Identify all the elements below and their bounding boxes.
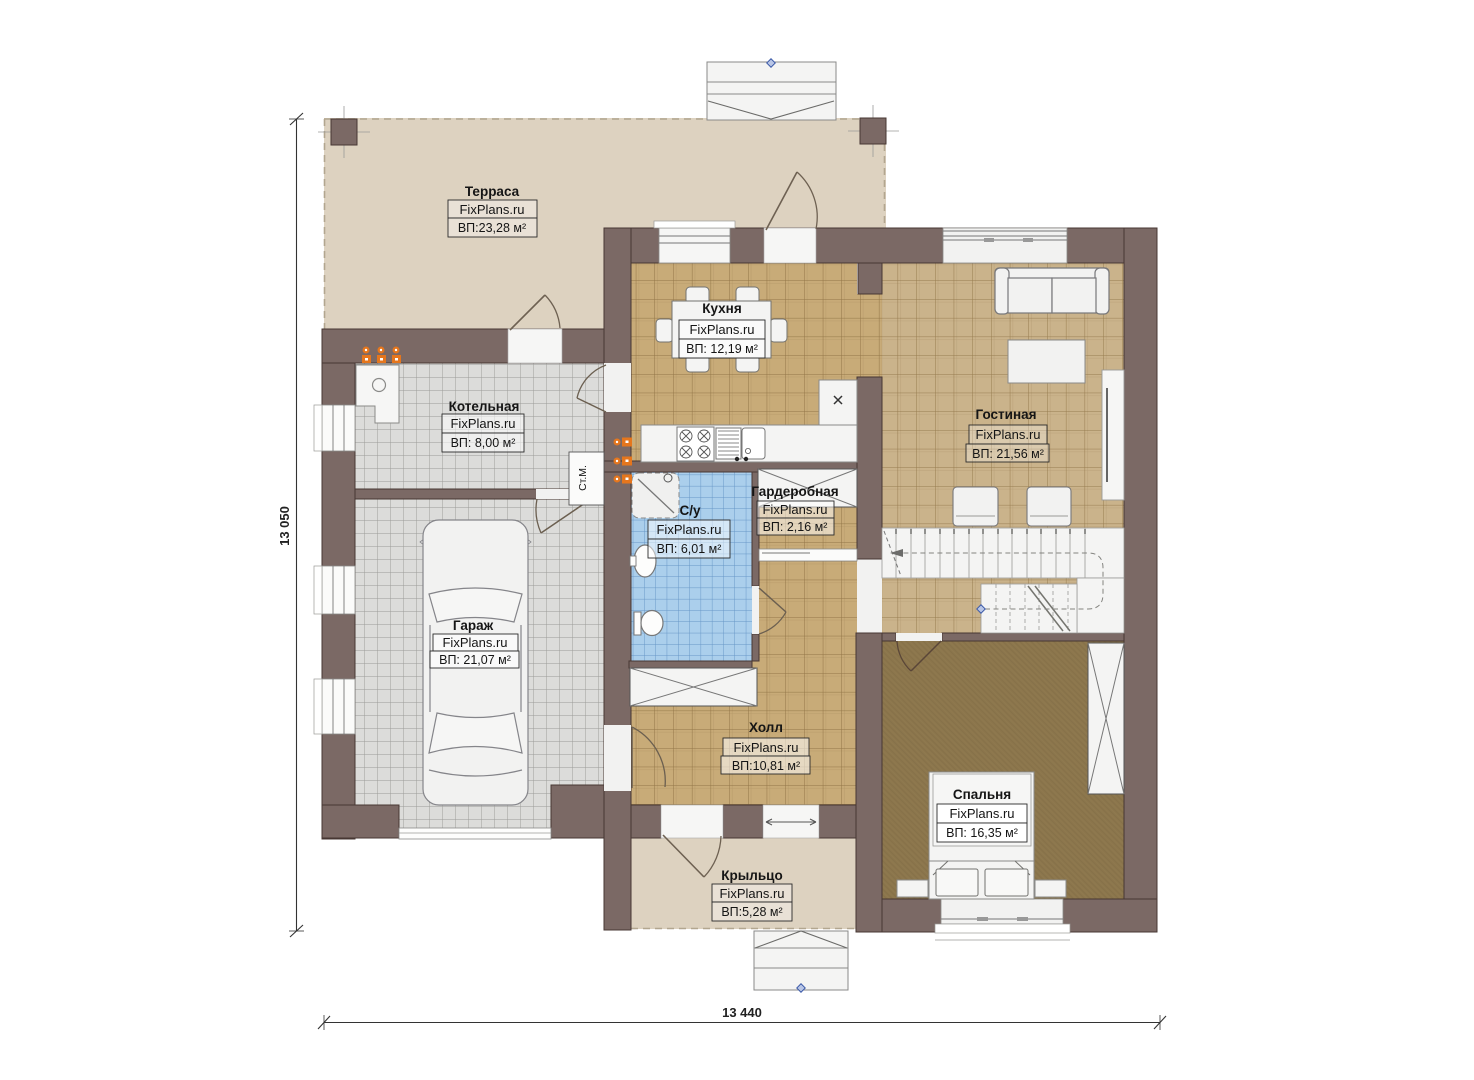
- svg-text:13 050: 13 050: [277, 506, 292, 546]
- svg-text:FixPlans.ru: FixPlans.ru: [459, 202, 524, 217]
- svg-text:13 440: 13 440: [722, 1005, 762, 1020]
- svg-text:FixPlans.ru: FixPlans.ru: [450, 416, 515, 431]
- svg-text:Кухня: Кухня: [702, 301, 741, 316]
- svg-text:ВП: 16,35 м²: ВП: 16,35 м²: [946, 826, 1018, 840]
- svg-text:FixPlans.ru: FixPlans.ru: [656, 522, 721, 537]
- svg-text:Терраса: Терраса: [465, 184, 520, 199]
- svg-text:FixPlans.ru: FixPlans.ru: [719, 886, 784, 901]
- svg-text:FixPlans.ru: FixPlans.ru: [949, 806, 1014, 821]
- svg-text:ВП:5,28 м²: ВП:5,28 м²: [721, 905, 782, 919]
- svg-text:ВП: 21,07 м²: ВП: 21,07 м²: [439, 653, 511, 667]
- svg-text:ВП: 12,19 м²: ВП: 12,19 м²: [686, 342, 758, 356]
- svg-text:Крыльцо: Крыльцо: [721, 868, 782, 883]
- svg-text:FixPlans.ru: FixPlans.ru: [689, 322, 754, 337]
- svg-text:FixPlans.ru: FixPlans.ru: [762, 502, 827, 517]
- svg-text:FixPlans.ru: FixPlans.ru: [975, 427, 1040, 442]
- svg-text:Гараж: Гараж: [453, 618, 494, 633]
- svg-text:FixPlans.ru: FixPlans.ru: [442, 635, 507, 650]
- svg-text:Спальня: Спальня: [953, 787, 1011, 802]
- svg-text:FixPlans.ru: FixPlans.ru: [733, 740, 798, 755]
- svg-text:Котельная: Котельная: [449, 399, 520, 414]
- svg-text:Ст.М.: Ст.М.: [577, 465, 589, 491]
- svg-text:Гардеробная: Гардеробная: [751, 484, 838, 499]
- svg-text:С/у: С/у: [679, 503, 701, 518]
- svg-text:Гостиная: Гостиная: [975, 407, 1036, 422]
- svg-text:ВП: 21,56 м²: ВП: 21,56 м²: [972, 447, 1044, 461]
- svg-text:Холл: Холл: [749, 720, 783, 735]
- svg-text:ВП:10,81 м²: ВП:10,81 м²: [732, 759, 800, 773]
- svg-text:ВП: 2,16 м²: ВП: 2,16 м²: [763, 520, 828, 534]
- svg-text:ВП: 6,01 м²: ВП: 6,01 м²: [657, 542, 722, 556]
- svg-text:ВП:23,28 м²: ВП:23,28 м²: [458, 221, 526, 235]
- svg-text:ВП: 8,00 м²: ВП: 8,00 м²: [451, 436, 516, 450]
